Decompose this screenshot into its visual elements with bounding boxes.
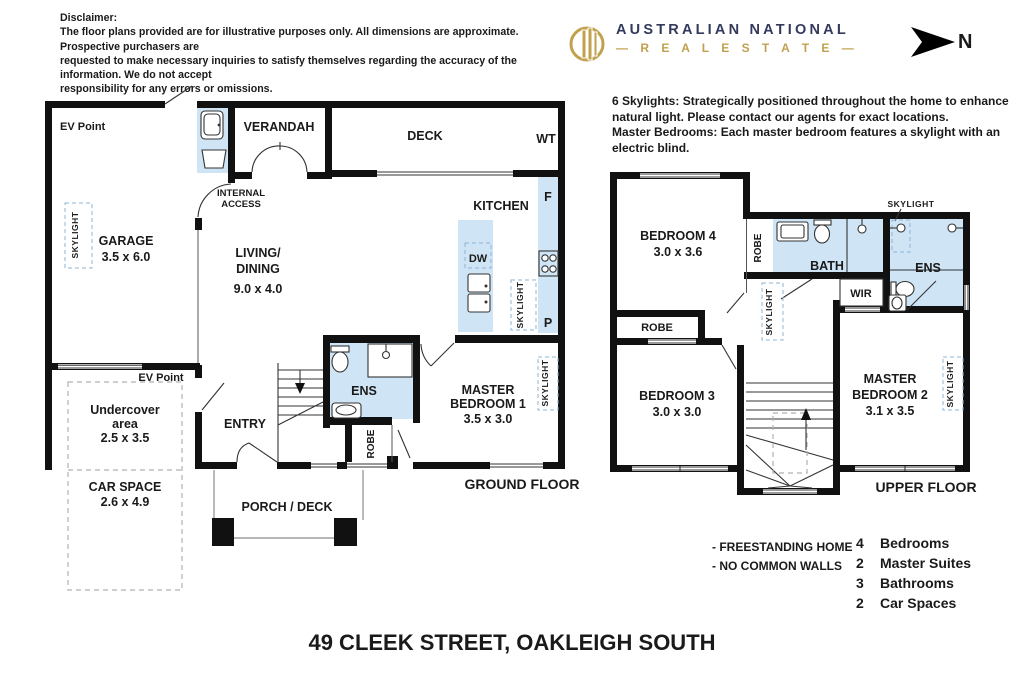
svg-text:GARAGE: GARAGE bbox=[99, 234, 154, 248]
svg-text:DW: DW bbox=[469, 253, 488, 265]
upper-stairs bbox=[746, 383, 833, 488]
brand-name: AUSTRALIAN NATIONAL bbox=[616, 22, 858, 38]
svg-text:VERANDAH: VERANDAH bbox=[244, 120, 315, 134]
north-indicator: N bbox=[910, 26, 972, 58]
svg-text:Undercover: Undercover bbox=[90, 403, 160, 417]
svg-text:PORCH / DECK: PORCH / DECK bbox=[242, 500, 333, 514]
svg-text:BEDROOM 2: BEDROOM 2 bbox=[852, 388, 928, 402]
bath-toilet-icon bbox=[814, 220, 831, 243]
svg-text:ENS: ENS bbox=[915, 261, 941, 275]
svg-text:DINING: DINING bbox=[236, 262, 280, 276]
svg-text:SKYLIGHT: SKYLIGHT bbox=[70, 211, 80, 258]
svg-text:EV Point: EV Point bbox=[138, 372, 184, 384]
svg-text:ACCESS: ACCESS bbox=[221, 199, 261, 210]
svg-text:KITCHEN: KITCHEN bbox=[473, 199, 529, 213]
svg-text:3.5 x 6.0: 3.5 x 6.0 bbox=[102, 250, 151, 264]
svg-text:BATH: BATH bbox=[810, 259, 844, 273]
svg-text:ROBE: ROBE bbox=[641, 322, 673, 334]
north-arrow-icon bbox=[910, 26, 956, 58]
svg-text:2.5 x 3.5: 2.5 x 3.5 bbox=[101, 431, 150, 445]
svg-text:UPPER FLOOR: UPPER FLOOR bbox=[875, 479, 976, 495]
ensuite-shower-icon bbox=[368, 344, 412, 377]
ground-stairs bbox=[278, 363, 323, 462]
north-label: N bbox=[958, 31, 972, 54]
bath-vanity-icon bbox=[777, 222, 808, 241]
agency-logo: AUSTRALIAN NATIONAL — R E A L E S T A T … bbox=[568, 22, 858, 66]
ensuite-vanity-icon bbox=[332, 403, 361, 418]
stat-row: 4 Bedrooms bbox=[856, 533, 971, 553]
svg-text:F: F bbox=[544, 190, 552, 204]
svg-text:BEDROOM 3: BEDROOM 3 bbox=[639, 389, 715, 403]
disclaimer-line: requested to make necessary inquiries to… bbox=[60, 54, 538, 83]
svg-text:ENTRY: ENTRY bbox=[224, 417, 267, 431]
svg-text:SKYLIGHT: SKYLIGHT bbox=[764, 288, 774, 335]
svg-text:P: P bbox=[544, 316, 552, 330]
laundry-trough-icon bbox=[202, 150, 226, 168]
ground-floor-plan: EV Point VERANDAH DECK WT INTERNAL ACCES… bbox=[40, 80, 600, 600]
svg-text:3.0 x 3.0: 3.0 x 3.0 bbox=[653, 405, 702, 419]
svg-text:MASTER: MASTER bbox=[864, 372, 917, 386]
ensuite-toilet-icon bbox=[331, 346, 349, 372]
floorplan-page: Disclaimer: The floor plans provided are… bbox=[0, 0, 1024, 683]
svg-text:LIVING/: LIVING/ bbox=[235, 246, 281, 260]
svg-text:SKYLIGHT: SKYLIGHT bbox=[515, 281, 525, 328]
svg-text:BEDROOM 4: BEDROOM 4 bbox=[640, 229, 716, 243]
svg-text:3.5 x 3.0: 3.5 x 3.0 bbox=[464, 412, 513, 426]
ens-toilet-icon bbox=[891, 282, 914, 297]
svg-text:ROBE: ROBE bbox=[366, 429, 377, 458]
svg-text:SKYLIGHT: SKYLIGHT bbox=[945, 360, 955, 407]
svg-text:2.6 x 4.9: 2.6 x 4.9 bbox=[101, 495, 150, 509]
stat-row: 2 Car Spaces bbox=[856, 593, 971, 613]
property-stats: 4 Bedrooms 2 Master Suites 3 Bathrooms 2… bbox=[856, 533, 971, 613]
svg-text:INTERNAL: INTERNAL bbox=[217, 188, 265, 199]
svg-text:DECK: DECK bbox=[407, 129, 442, 143]
svg-text:ENS: ENS bbox=[351, 384, 377, 398]
stat-row: 3 Bathrooms bbox=[856, 573, 971, 593]
agency-logo-icon bbox=[568, 22, 608, 66]
property-address: 49 CLEEK STREET, OAKLEIGH SOUTH bbox=[0, 630, 1024, 656]
laundry-sink-icon bbox=[201, 111, 223, 139]
svg-text:GROUND FLOOR: GROUND FLOOR bbox=[464, 476, 579, 492]
skylights-note: 6 Skylights: Strategically positioned th… bbox=[612, 94, 1020, 157]
svg-text:ROBE: ROBE bbox=[753, 233, 764, 262]
svg-text:9.0 x 4.0: 9.0 x 4.0 bbox=[234, 282, 283, 296]
stat-row: 2 Master Suites bbox=[856, 553, 971, 573]
upper-floor-plan: BEDROOM 4 3.0 x 3.6 ROBE ROBE BATH ENS W… bbox=[600, 160, 1024, 510]
svg-text:SKYLIGHT: SKYLIGHT bbox=[888, 199, 935, 209]
svg-text:WIR: WIR bbox=[850, 288, 871, 300]
property-features: - FREESTANDING HOME - NO COMMON WALLS bbox=[712, 538, 852, 576]
svg-text:EV Point: EV Point bbox=[60, 121, 106, 133]
svg-text:SKYLIGHT: SKYLIGHT bbox=[540, 359, 550, 406]
svg-text:3.0 x 3.6: 3.0 x 3.6 bbox=[654, 245, 703, 259]
brand-tagline: — R E A L E S T A T E — bbox=[616, 41, 858, 55]
disclaimer-title: Disclaimer: bbox=[60, 11, 538, 25]
feature-item: - FREESTANDING HOME bbox=[712, 538, 852, 557]
svg-text:WT: WT bbox=[536, 132, 556, 146]
disclaimer-line: The floor plans provided are for illustr… bbox=[60, 25, 538, 54]
svg-text:area: area bbox=[112, 417, 139, 431]
svg-text:BEDROOM 1: BEDROOM 1 bbox=[450, 397, 526, 411]
ground-labels: EV Point VERANDAH DECK WT INTERNAL ACCES… bbox=[60, 120, 580, 514]
ens-vanity-icon bbox=[889, 295, 906, 311]
svg-text:MASTER: MASTER bbox=[462, 383, 515, 397]
svg-text:3.1 x 3.5: 3.1 x 3.5 bbox=[866, 404, 915, 418]
svg-text:CAR SPACE: CAR SPACE bbox=[89, 480, 162, 494]
feature-item: - NO COMMON WALLS bbox=[712, 557, 852, 576]
